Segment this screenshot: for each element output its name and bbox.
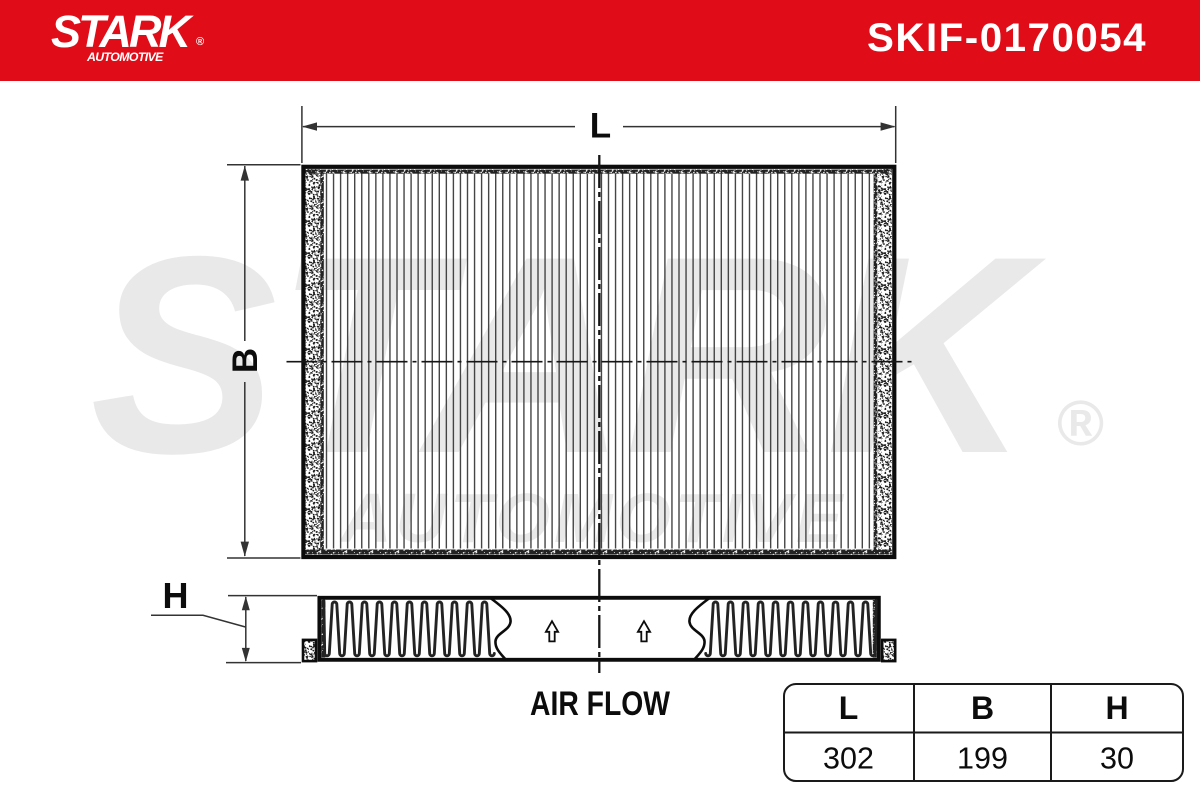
svg-text:30: 30 — [1100, 742, 1134, 776]
svg-text:H: H — [163, 575, 189, 616]
svg-text:L: L — [590, 107, 611, 146]
svg-text:199: 199 — [957, 742, 1008, 776]
svg-text:B: B — [226, 348, 265, 373]
svg-text:H: H — [1105, 690, 1128, 726]
svg-text:302: 302 — [823, 742, 874, 776]
svg-text:®: ® — [1057, 387, 1104, 459]
svg-text:AIR FLOW: AIR FLOW — [530, 685, 671, 723]
svg-text:L: L — [839, 690, 859, 726]
svg-text:B: B — [971, 690, 994, 726]
